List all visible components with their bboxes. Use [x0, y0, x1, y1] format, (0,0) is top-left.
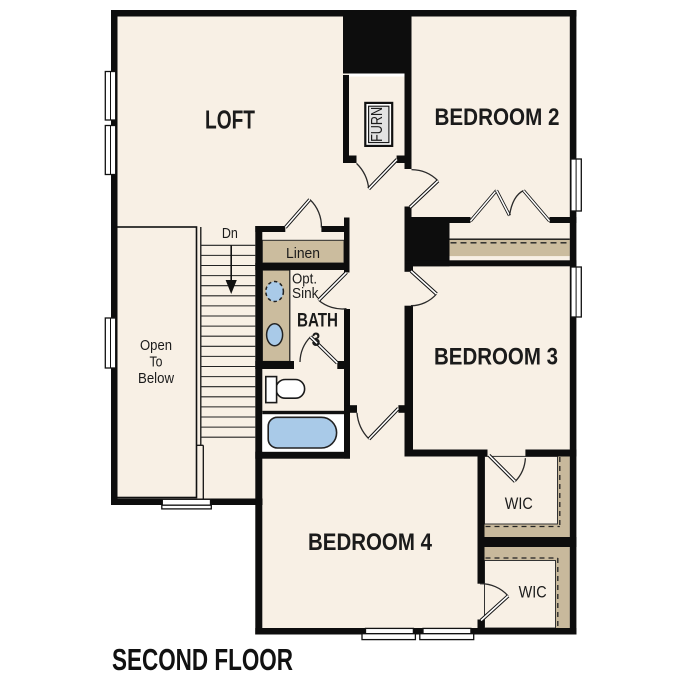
svg-text:FURN: FURN: [369, 107, 386, 142]
svg-text:3: 3: [312, 330, 321, 351]
svg-text:Linen: Linen: [286, 245, 320, 262]
svg-text:BATH: BATH: [297, 311, 338, 332]
svg-text:Dn: Dn: [222, 225, 238, 242]
svg-text:To: To: [150, 355, 163, 371]
svg-text:SECOND FLOOR: SECOND FLOOR: [112, 643, 293, 677]
svg-text:WIC: WIC: [505, 495, 533, 513]
svg-text:WIC: WIC: [519, 584, 547, 602]
svg-text:Sink: Sink: [292, 286, 319, 302]
svg-text:LOFT: LOFT: [205, 105, 255, 135]
svg-text:Open: Open: [140, 338, 172, 354]
svg-text:BEDROOM 2: BEDROOM 2: [435, 104, 560, 131]
svg-text:Below: Below: [138, 371, 174, 387]
svg-text:BEDROOM 3: BEDROOM 3: [434, 344, 558, 371]
svg-text:BEDROOM 4: BEDROOM 4: [308, 529, 432, 556]
